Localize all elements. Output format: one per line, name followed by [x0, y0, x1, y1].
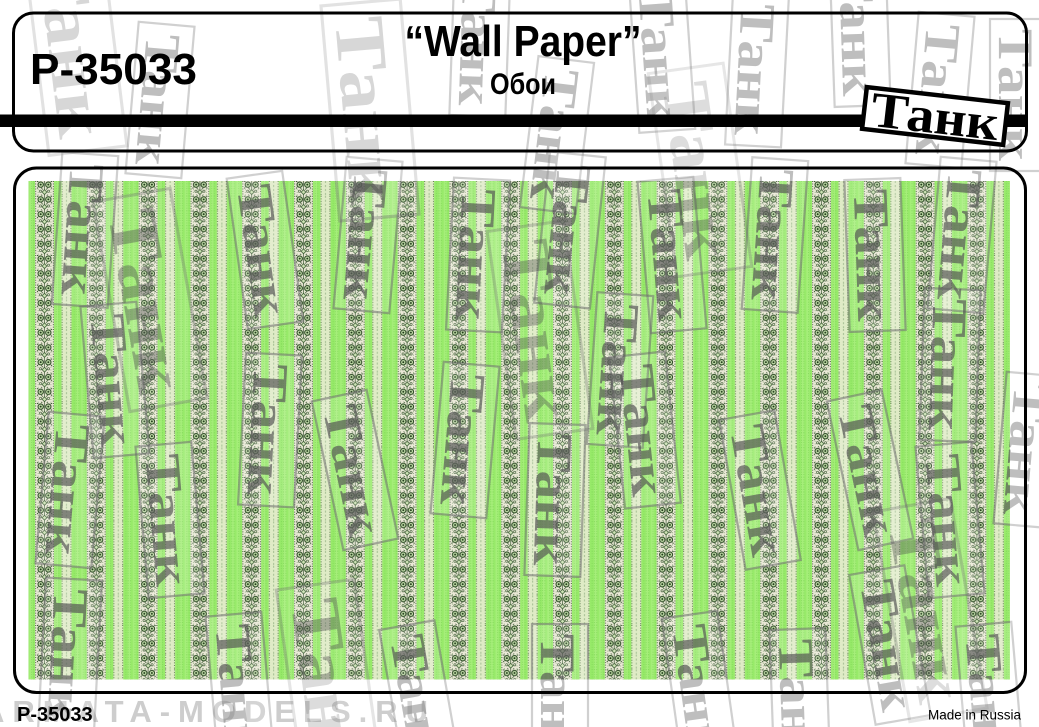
- svg-text:P-35033: P-35033: [30, 46, 197, 94]
- svg-text:P-35033: P-35033: [17, 704, 93, 726]
- svg-text:Made in Russia: Made in Russia: [928, 708, 1022, 723]
- svg-text:Обои: Обои: [490, 68, 556, 101]
- svg-text:“Wall Paper”: “Wall Paper”: [405, 17, 642, 66]
